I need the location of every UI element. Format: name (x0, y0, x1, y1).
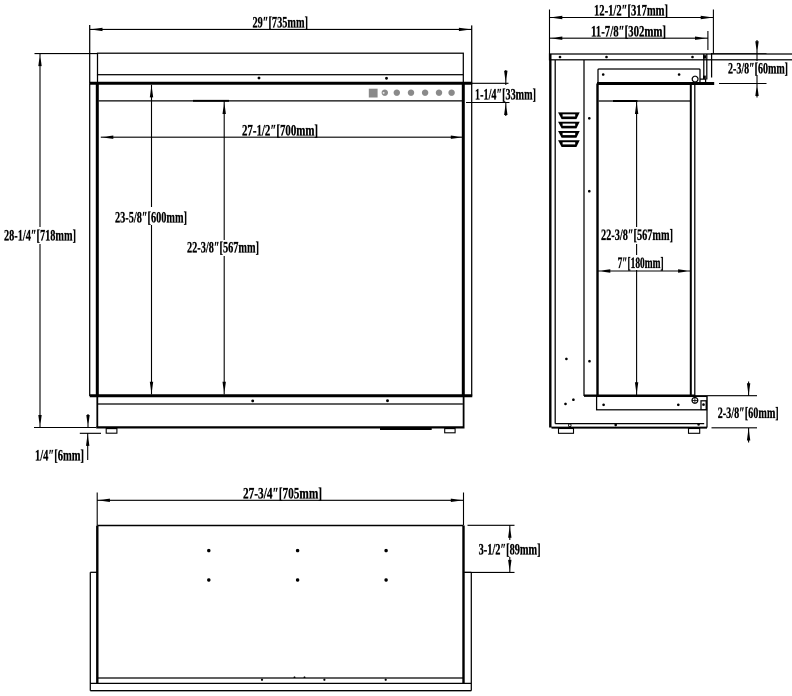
svg-text:29″[735mm]: 29″[735mm] (253, 15, 309, 32)
svg-text:27-1/2″[700mm]: 27-1/2″[700mm] (242, 123, 318, 140)
svg-text:27-3/4″[705mm]: 27-3/4″[705mm] (243, 486, 322, 503)
svg-text:2-3/8″[60mm]: 2-3/8″[60mm] (728, 61, 788, 78)
svg-text:23-5/8″[600mm]: 23-5/8″[600mm] (115, 210, 187, 227)
svg-text:28-1/4″[718mm]: 28-1/4″[718mm] (4, 228, 76, 245)
svg-text:12-1/2″[317mm]: 12-1/2″[317mm] (594, 3, 668, 20)
svg-text:11-7/8″[302mm]: 11-7/8″[302mm] (591, 24, 666, 41)
svg-text:1-1/4″[33mm]: 1-1/4″[33mm] (475, 87, 536, 104)
svg-text:22-3/8″[567mm]: 22-3/8″[567mm] (187, 240, 259, 257)
svg-text:2-3/8″[60mm]: 2-3/8″[60mm] (718, 405, 779, 422)
svg-text:3-1/2″[89mm]: 3-1/2″[89mm] (479, 542, 541, 559)
svg-text:7″[180mm]: 7″[180mm] (618, 255, 664, 272)
svg-text:22-3/8″[567mm]: 22-3/8″[567mm] (601, 227, 673, 244)
svg-text:1/4″[6mm]: 1/4″[6mm] (35, 448, 84, 465)
